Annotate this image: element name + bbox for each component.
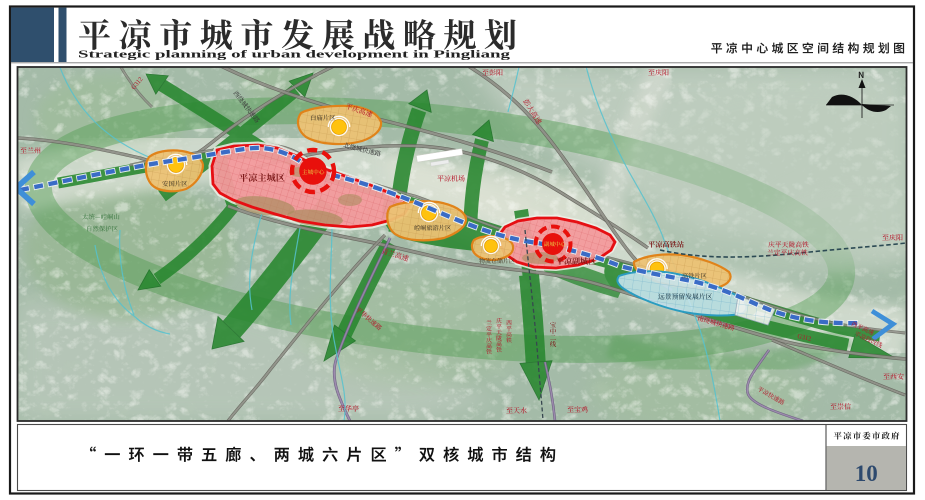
svg-text:10: 10 [855, 461, 878, 486]
svg-text:Strategic planning of urban de: Strategic planning of urban development … [78, 50, 510, 61]
